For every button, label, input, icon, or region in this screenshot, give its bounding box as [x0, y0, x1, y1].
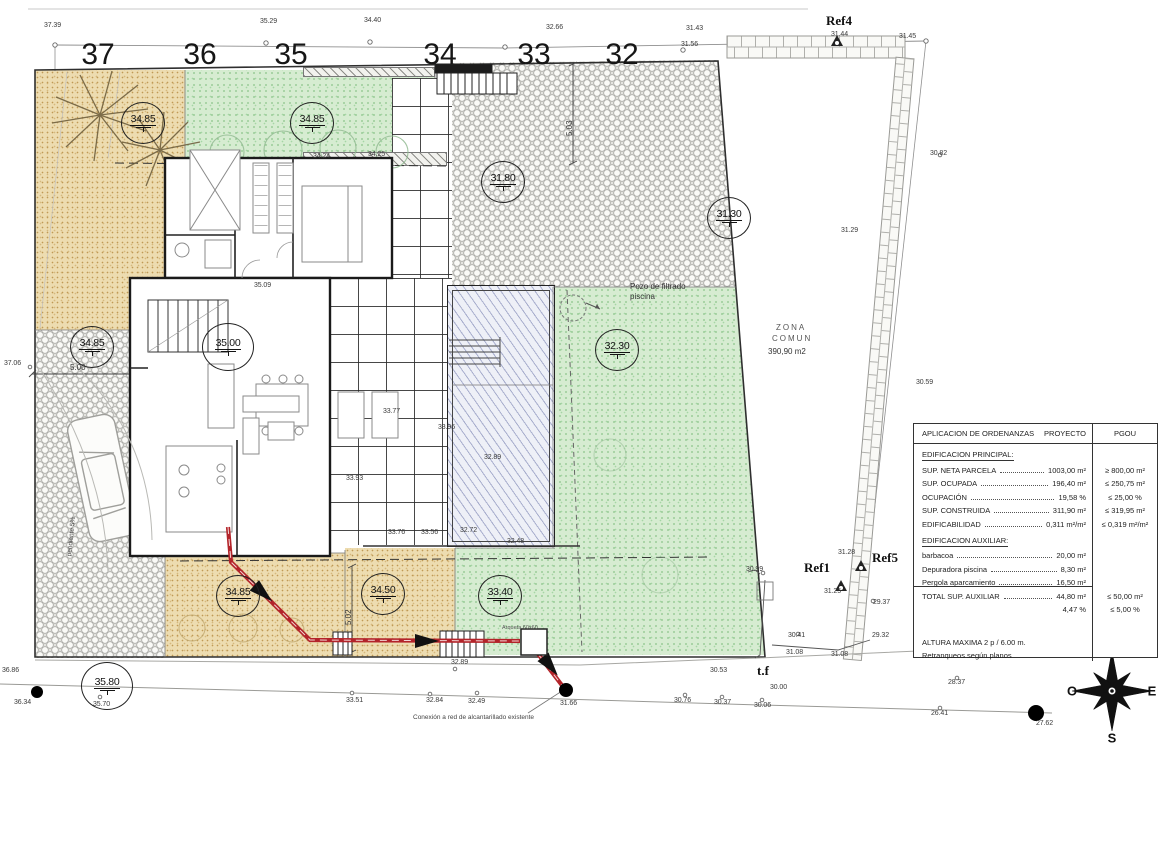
spot-elevation: 32.84 — [426, 697, 443, 704]
zone-garden-tan-south-1 — [165, 553, 345, 657]
swimming-pool — [447, 285, 555, 547]
site-plan-canvas: 373635343332 37.3935.2934.4032.6631.4331… — [0, 0, 1158, 864]
row-label: EDIFICACION PRINCIPAL: — [922, 450, 1014, 461]
spot-elevation: 30.82 — [930, 150, 947, 157]
row-pgou-value: ≤ 0,319 m²/m² — [1093, 520, 1157, 530]
hatched-strip-house-top — [303, 152, 447, 166]
row-label: SUP. OCUPADA — [922, 479, 977, 488]
row-pgou-value: ≤ 50,00 m² — [1093, 592, 1157, 602]
row-pgou-value: ≤ 5,00 % — [1093, 605, 1157, 615]
row-proyecto-value: 20,00 m² — [1056, 551, 1086, 560]
table-row: OCUPACIÓN 19,58 % ≤ 25,00 % — [914, 489, 1157, 503]
dotted-leader — [971, 499, 1055, 500]
spot-elevation: 26.41 — [931, 710, 948, 717]
spot-elevation: 31.08 — [786, 649, 803, 656]
row-proyecto-value: 1003,00 m² — [1048, 466, 1086, 475]
row-label: SUP. NETA PARCELA — [922, 466, 996, 475]
row-label: OCUPACIÓN — [922, 493, 967, 502]
zone-terrace-tiles-2 — [392, 78, 452, 278]
column-proyecto: PROYECTO — [1044, 429, 1086, 438]
row-label: Retranqueos según planos — [922, 651, 1012, 660]
annotation: 390,90 m2 — [768, 347, 806, 356]
annotation: t.f — [757, 663, 769, 679]
spot-elevation: 30.37 — [714, 699, 731, 706]
spot-elevation: 31.28 — [838, 549, 855, 556]
row-pgou-value — [1093, 461, 1157, 462]
table-row — [914, 615, 1157, 635]
dotted-leader — [985, 526, 1042, 527]
spot-elevation: 31.25 — [824, 588, 841, 595]
table-row: EDIFICABILIDAD 0,311 m²/m² ≤ 0,319 m²/m² — [914, 516, 1157, 530]
spot-elevation: 31.44 — [831, 31, 848, 38]
dotted-leader — [1000, 472, 1044, 473]
ref-label: Ref5 — [872, 550, 898, 566]
spot-elevation: 31.66 — [560, 700, 577, 707]
row-pgou-value — [1093, 547, 1157, 548]
ref-label: Ref1 — [804, 560, 830, 576]
spot-elevation: 31.56 — [681, 41, 698, 48]
table-row: SUP. CONSTRUIDA 311,90 m² ≤ 319,95 m² — [914, 503, 1157, 517]
spot-elevation: 31.08 — [831, 651, 848, 658]
ordinance-table-body: EDIFICACION PRINCIPAL: SUP. NETA PARCELA… — [914, 444, 1157, 661]
zone-garden-tan-south-2 — [345, 548, 455, 657]
spot-elevation: 27.62 — [1036, 720, 1053, 727]
row-proyecto-value: 0,311 m²/m² — [1046, 520, 1086, 529]
ref-markers — [831, 35, 867, 591]
spot-elevation: 31.45 — [899, 33, 916, 40]
row-pgou-value — [1093, 660, 1157, 661]
compass-west-label: O — [1067, 684, 1077, 699]
spot-elevation: 37.39 — [44, 22, 61, 29]
ordinance-table: APLICACION DE ORDENANZAS PROYECTO PGOU E… — [913, 423, 1158, 658]
row-pgou-value: ≥ 800,00 m² — [1093, 466, 1157, 476]
plot-number: 36 — [183, 38, 216, 72]
row-pgou-value: ≤ 25,00 % — [1093, 493, 1157, 503]
spot-elevation: 35.09 — [254, 282, 271, 289]
dotted-leader — [957, 557, 1052, 558]
spot-elevation: 30.41 — [788, 632, 805, 639]
row-proyecto-value: 311,90 m² — [1053, 506, 1086, 515]
zona-comun-fence — [748, 570, 870, 658]
compass-rose — [1072, 651, 1152, 731]
manhole-dots — [31, 683, 1044, 721]
spot-elevation: 35.70 — [93, 701, 110, 708]
row-label: barbacoa — [922, 551, 953, 560]
row-proyecto-value: 196,40 m² — [1052, 479, 1086, 488]
plot-number: 37 — [81, 38, 114, 72]
row-pgou-value — [1093, 647, 1157, 648]
stone-wall-east — [843, 57, 914, 660]
row-proyecto-value: 8,30 m² — [1061, 565, 1086, 574]
row-label: ALTURA MAXIMA 2 p / 6.00 m. — [922, 638, 1026, 647]
row-label: TOTAL SUP. AUXILIAR — [922, 592, 1000, 601]
row-proyecto-value: 19,58 % — [1058, 493, 1086, 502]
row-label: Depuradora piscina — [922, 565, 987, 574]
ordinance-table-header: APLICACION DE ORDENANZAS PROYECTO PGOU — [914, 424, 1157, 444]
spot-elevation: 30.00 — [770, 684, 787, 691]
conexion-leader — [528, 691, 562, 713]
hatched-strip-boundary — [303, 67, 435, 77]
row-proyecto-value: 4,47 % — [1063, 605, 1086, 614]
spot-elevation: 30.76 — [674, 697, 691, 704]
table-row: EDIFICACION AUXILIAR: — [914, 530, 1157, 548]
dotted-leader — [999, 584, 1052, 585]
spot-elevation: 33.51 — [346, 697, 363, 704]
benchmark-icon — [221, 351, 236, 356]
spot-elevation: 30.53 — [710, 667, 727, 674]
row-label: EDIFICACION AUXILIAR: — [922, 536, 1008, 547]
spot-elevation: 32.66 — [546, 24, 563, 31]
annotation: ZONA — [776, 323, 806, 332]
row-pgou-value: ≤ 250,75 m² — [1093, 479, 1157, 489]
spot-elevation: 31.29 — [841, 227, 858, 234]
dotted-leader — [981, 485, 1048, 486]
level-value: 35.00 — [215, 338, 242, 350]
benchmark-icon — [100, 690, 115, 695]
level-marker: 35.00 — [202, 323, 254, 371]
zone-driveway — [35, 330, 165, 658]
dotted-leader — [991, 571, 1057, 572]
dotted-leader — [994, 512, 1049, 513]
table-row: SUP. NETA PARCELA 1003,00 m² ≥ 800,00 m² — [914, 462, 1157, 476]
spot-elevation: 35.29 — [260, 18, 277, 25]
table-row: barbacoa 20,00 m² — [914, 548, 1157, 562]
spot-elevation: 29.32 — [872, 632, 889, 639]
table-title: APLICACION DE ORDENANZAS — [922, 429, 1034, 438]
spot-elevation: 29.37 — [873, 599, 890, 606]
spot-elevation: 30.06 — [754, 702, 771, 709]
table-row: EDIFICACION PRINCIPAL: — [914, 444, 1157, 462]
dotted-leader — [1004, 598, 1053, 599]
row-pgou-value: ≤ 319,95 m² — [1093, 506, 1157, 516]
spot-elevation: 30.59 — [916, 379, 933, 386]
spot-elevation: 28.37 — [948, 679, 965, 686]
spot-elevation: 36.86 — [2, 667, 19, 674]
zone-garden-tan-topleft — [35, 70, 185, 330]
spot-elevation: 34.40 — [364, 17, 381, 24]
table-row: Depuradora piscina 8,30 m² — [914, 561, 1157, 575]
row-label: SUP. CONSTRUIDA — [922, 506, 990, 515]
table-row: 4,47 % ≤ 5,00 % — [914, 602, 1157, 616]
stone-wall-top — [727, 36, 905, 58]
row-pgou-value — [1093, 634, 1157, 635]
row-proyecto-value: 44,80 m² — [1056, 592, 1086, 601]
level-marker: 35.80 — [81, 662, 133, 710]
spot-elevation: 31.43 — [686, 25, 703, 32]
annotation: Conexión a red de alcantarillado existen… — [413, 714, 534, 721]
level-value: 35.80 — [94, 677, 121, 689]
spot-elevation: 32.49 — [468, 698, 485, 705]
pool-inner-edge — [452, 290, 550, 542]
ref-label: Ref4 — [826, 13, 852, 29]
row-pgou-value — [1093, 560, 1157, 561]
table-row: SUP. OCUPADA 196,40 m² ≤ 250,75 m² — [914, 476, 1157, 490]
column-pgou: PGOU — [1093, 429, 1157, 438]
row-pgou-value — [1093, 574, 1157, 575]
street-lines — [0, 650, 1052, 713]
compass-south-label: S — [1108, 731, 1117, 746]
row-label: EDIFICABILIDAD — [922, 520, 981, 529]
annotation: COMUN — [772, 334, 812, 343]
table-row: TOTAL SUP. AUXILIAR 44,80 m² ≤ 50,00 m² — [914, 588, 1157, 602]
spot-elevation: 37.06 — [4, 360, 21, 367]
table-row: Retranqueos según planos — [914, 648, 1157, 661]
row-pgou-value — [1093, 587, 1157, 588]
compass-east-label: E — [1148, 684, 1157, 699]
spot-elevation: 36.34 — [14, 699, 31, 706]
spot-elevation: 32.89 — [451, 659, 468, 666]
zone-terrace-tiles-1 — [330, 278, 452, 545]
